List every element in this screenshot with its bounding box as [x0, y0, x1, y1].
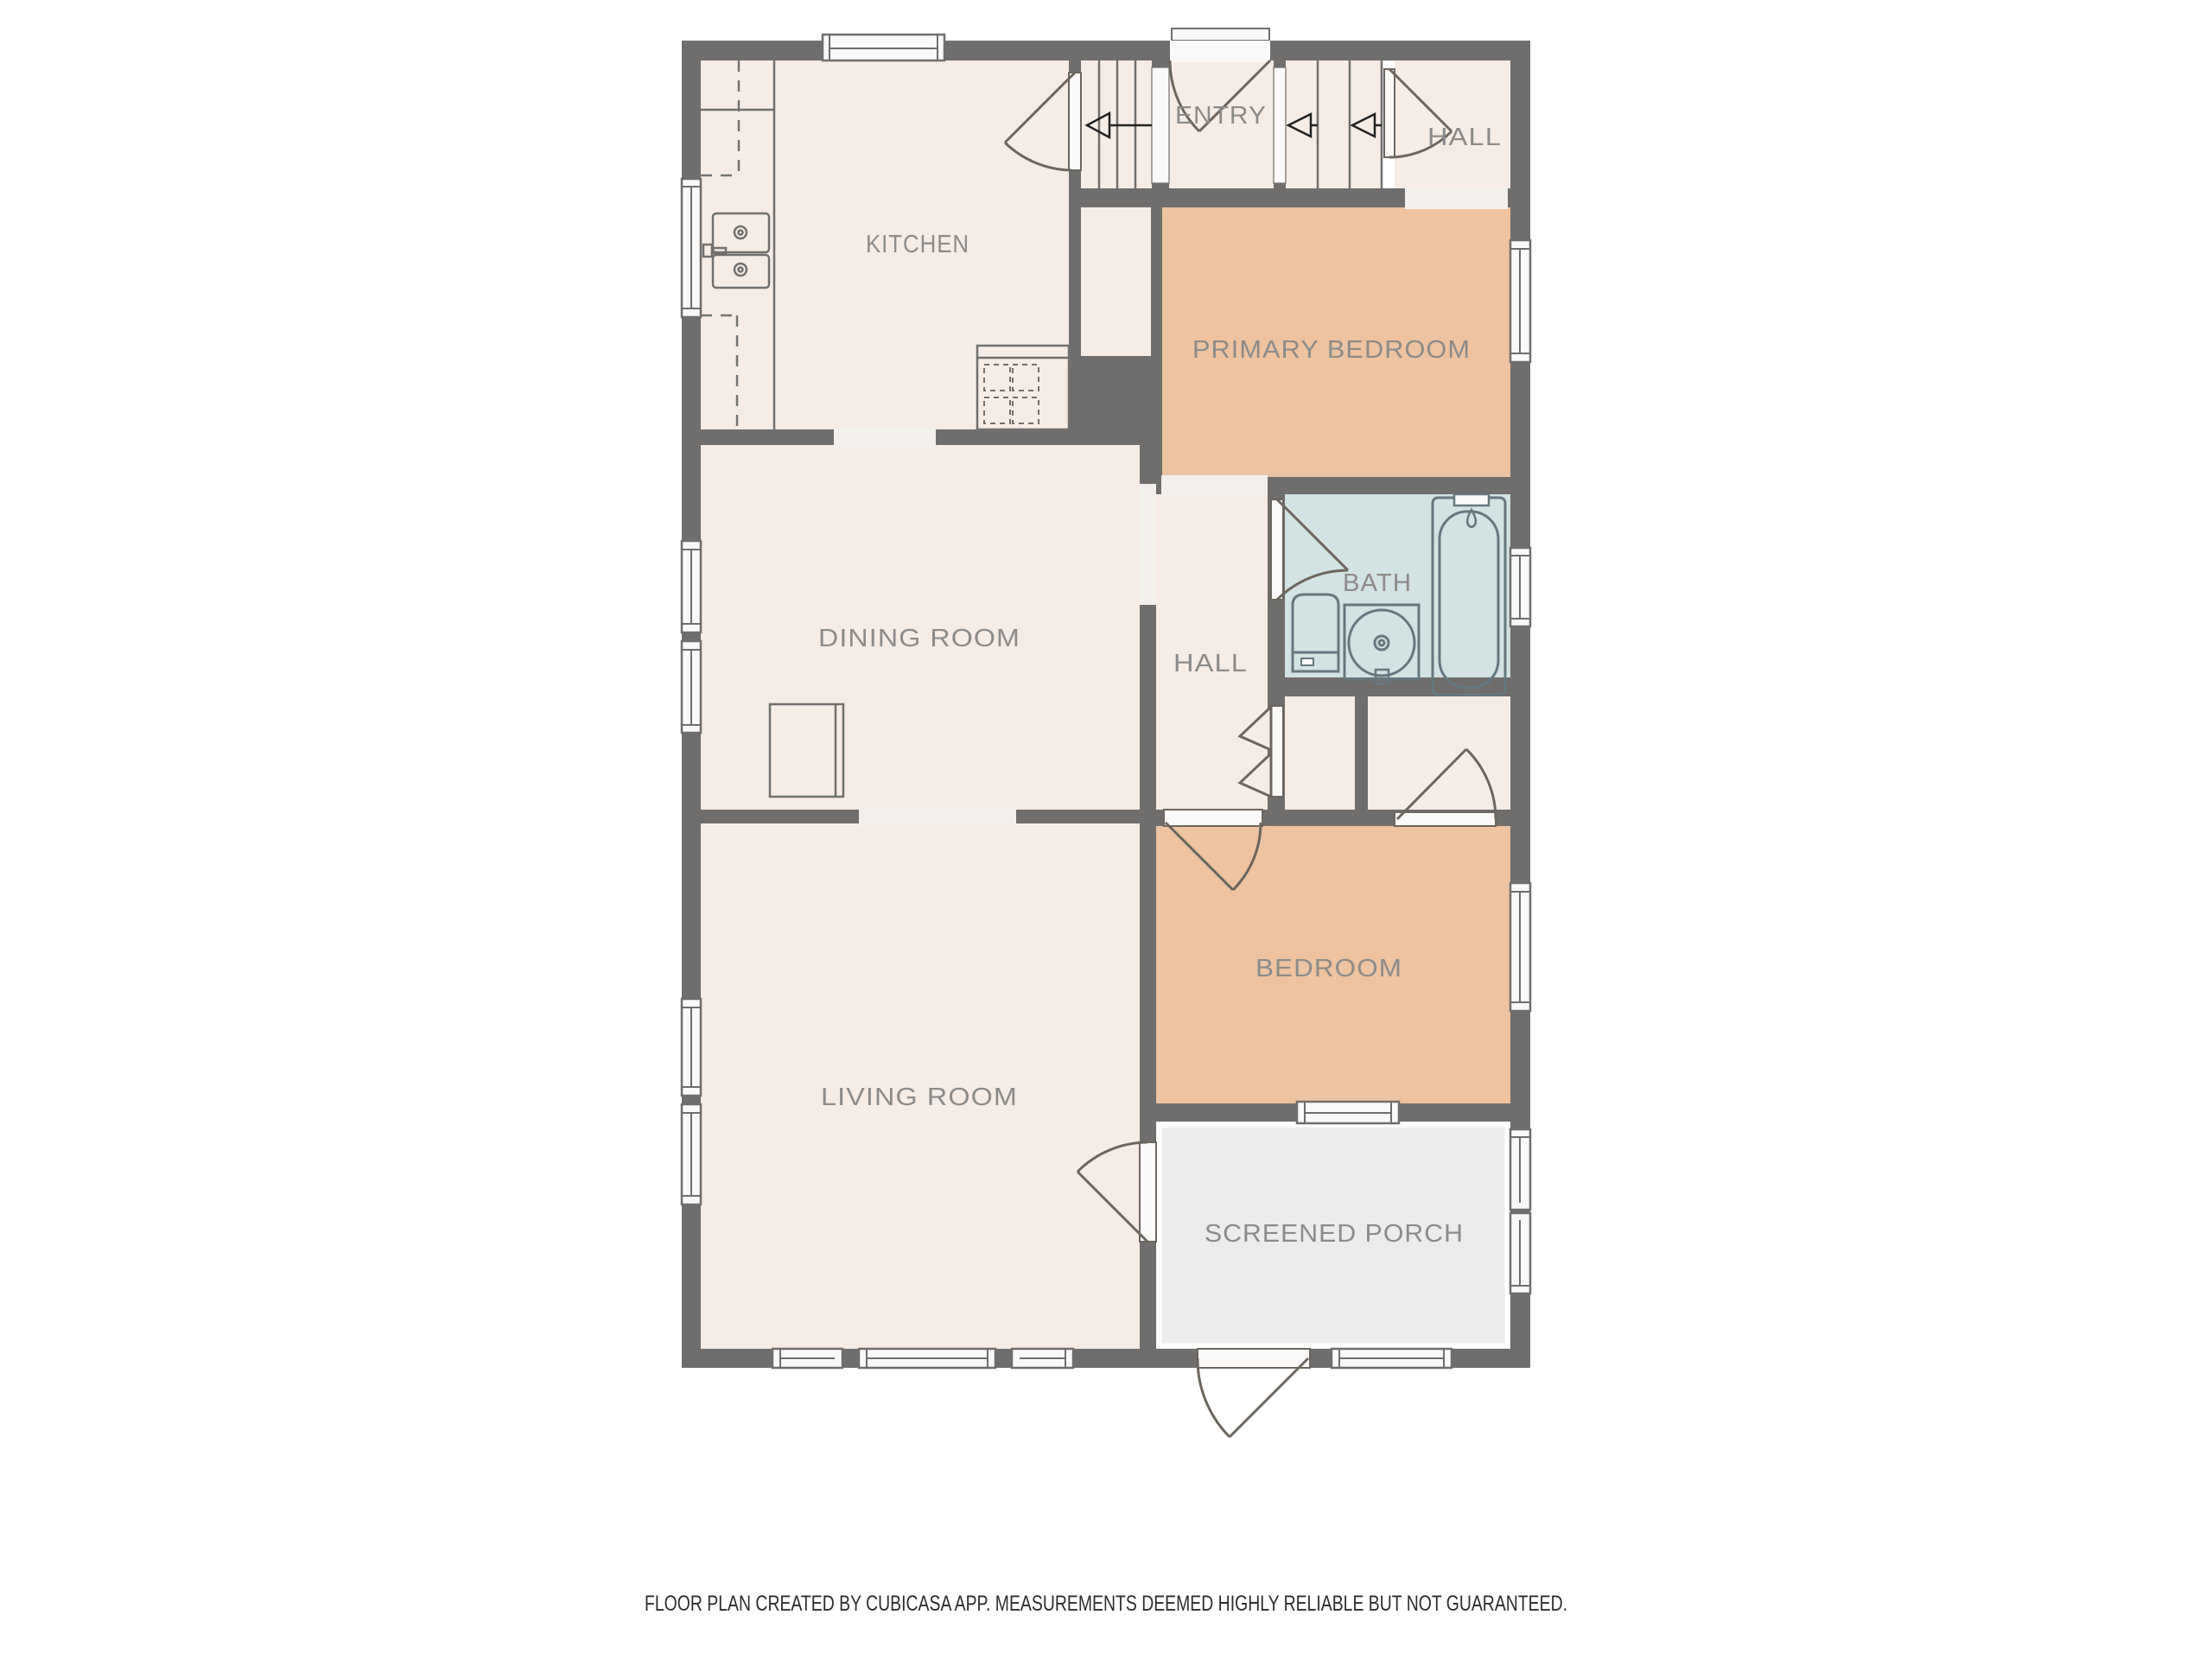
svg-text:LIVING ROOM: LIVING ROOM [821, 1084, 1018, 1111]
svg-text:BATH: BATH [1343, 569, 1412, 597]
svg-text:DINING ROOM: DINING ROOM [818, 625, 1020, 652]
svg-text:PRIMARY BEDROOM: PRIMARY BEDROOM [1192, 336, 1471, 364]
svg-text:SCREENED PORCH: SCREENED PORCH [1205, 1220, 1464, 1248]
svg-text:FLOOR PLAN CREATED BY CUBICASA: FLOOR PLAN CREATED BY CUBICASA APP. MEAS… [645, 1592, 1567, 1616]
svg-text:ENTRY: ENTRY [1175, 102, 1267, 130]
svg-text:HALL: HALL [1173, 650, 1248, 677]
svg-text:BEDROOM: BEDROOM [1255, 955, 1402, 982]
svg-text:KITCHEN: KITCHEN [866, 231, 969, 258]
svg-text:HALL: HALL [1427, 124, 1502, 151]
